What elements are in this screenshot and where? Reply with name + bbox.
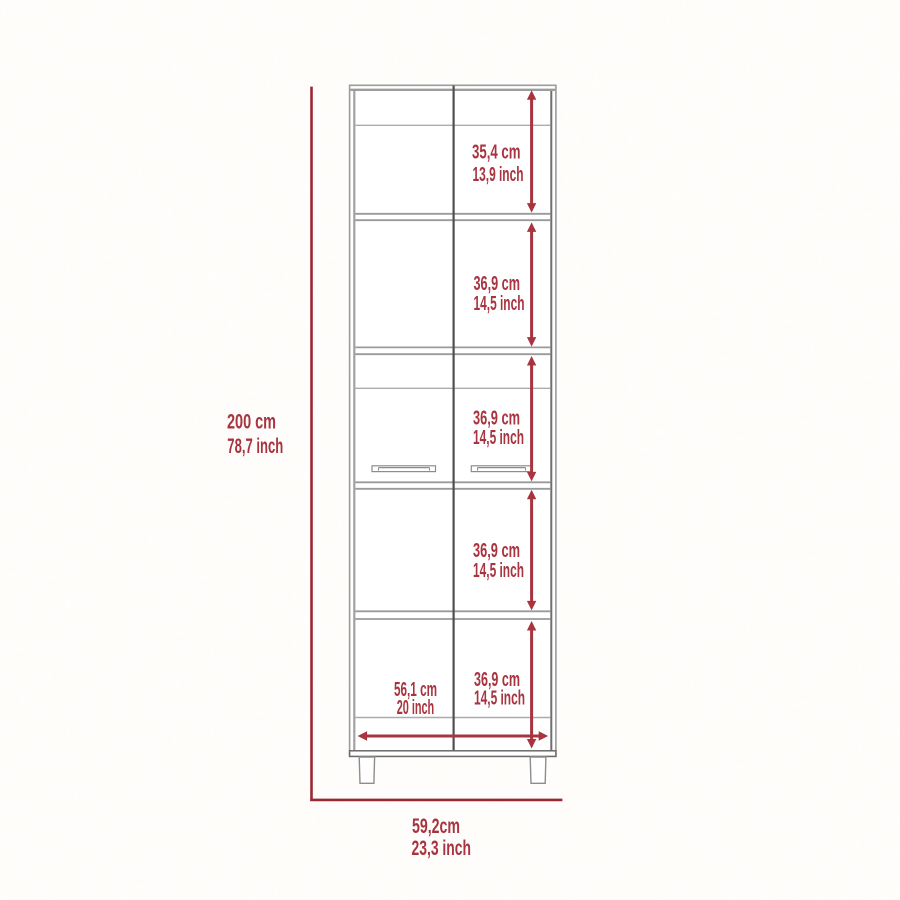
svg-text:14,5 inch: 14,5 inch <box>473 427 524 449</box>
svg-text:14,5 inch: 14,5 inch <box>474 293 525 315</box>
svg-text:78,7 inch: 78,7 inch <box>227 434 283 458</box>
svg-text:13,9 inch: 13,9 inch <box>473 164 524 186</box>
svg-text:20 inch: 20 inch <box>397 697 435 719</box>
svg-text:14,5 inch: 14,5 inch <box>474 688 525 710</box>
svg-text:59,2cm: 59,2cm <box>412 814 460 838</box>
svg-text:23,3 inch: 23,3 inch <box>412 836 472 860</box>
svg-text:14,5 inch: 14,5 inch <box>473 560 524 582</box>
svg-text:36,9 cm: 36,9 cm <box>473 540 520 562</box>
svg-text:35,4 cm: 35,4 cm <box>472 142 521 164</box>
svg-text:36,9 cm: 36,9 cm <box>474 273 521 295</box>
svg-text:200 cm: 200 cm <box>227 409 276 433</box>
